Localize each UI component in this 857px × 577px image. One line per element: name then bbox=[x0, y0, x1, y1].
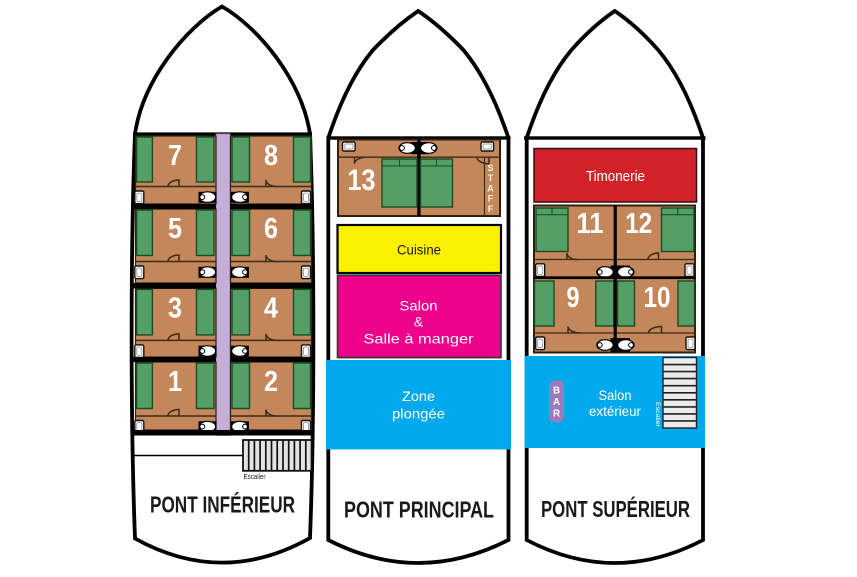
svg-text:PONT SUPÉRIEUR: PONT SUPÉRIEUR bbox=[541, 495, 690, 522]
svg-text:4: 4 bbox=[264, 292, 278, 324]
svg-text:A: A bbox=[487, 183, 494, 193]
svg-text:5: 5 bbox=[168, 213, 182, 245]
svg-text:F: F bbox=[488, 204, 494, 214]
svg-text:7: 7 bbox=[168, 140, 182, 172]
svg-text:PONT PRINCIPAL: PONT PRINCIPAL bbox=[344, 497, 494, 523]
svg-text:13: 13 bbox=[348, 164, 376, 197]
svg-text:Escalier: Escalier bbox=[244, 472, 266, 481]
svg-text:plongée: plongée bbox=[392, 407, 445, 422]
svg-text:F: F bbox=[488, 194, 494, 204]
svg-text:8: 8 bbox=[264, 140, 278, 172]
svg-text:10: 10 bbox=[644, 282, 671, 314]
svg-text:Timonerie: Timonerie bbox=[586, 169, 645, 185]
svg-text:R: R bbox=[553, 408, 560, 419]
svg-text:Zone: Zone bbox=[402, 389, 435, 404]
svg-text:Salle à manger: Salle à manger bbox=[364, 332, 474, 347]
svg-text:Salon: Salon bbox=[400, 299, 438, 314]
svg-text:PONT INFÉRIEUR: PONT INFÉRIEUR bbox=[150, 491, 295, 518]
svg-text:9: 9 bbox=[567, 282, 580, 314]
svg-text:Escalier: Escalier bbox=[654, 402, 661, 428]
svg-text:3: 3 bbox=[168, 292, 182, 324]
svg-text:Salon: Salon bbox=[599, 388, 632, 403]
svg-text:6: 6 bbox=[264, 213, 278, 245]
svg-text:B: B bbox=[553, 386, 560, 397]
svg-text:A: A bbox=[553, 397, 560, 408]
svg-text:T: T bbox=[488, 173, 494, 183]
svg-text:S: S bbox=[487, 163, 493, 173]
svg-text:extérieur: extérieur bbox=[589, 404, 641, 419]
svg-text:2: 2 bbox=[264, 366, 278, 398]
svg-text:Cuisine: Cuisine bbox=[397, 243, 441, 258]
svg-text:11: 11 bbox=[577, 208, 604, 240]
svg-text:1: 1 bbox=[168, 366, 182, 398]
svg-text:12: 12 bbox=[625, 208, 652, 240]
svg-text:&: & bbox=[414, 315, 423, 330]
